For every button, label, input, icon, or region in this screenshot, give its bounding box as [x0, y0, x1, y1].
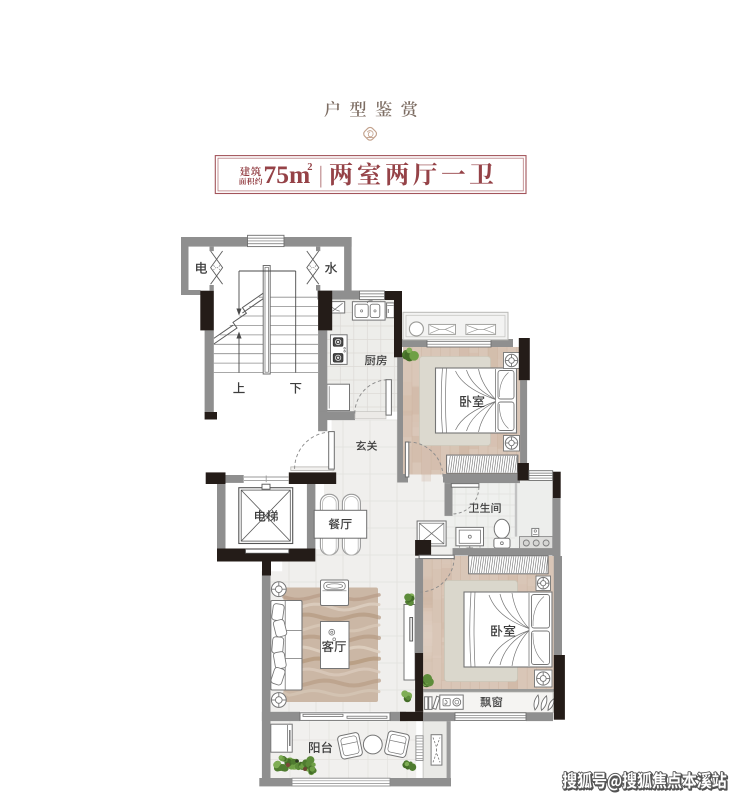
svg-text:75m: 75m: [264, 160, 311, 189]
svg-text:2: 2: [307, 162, 312, 173]
